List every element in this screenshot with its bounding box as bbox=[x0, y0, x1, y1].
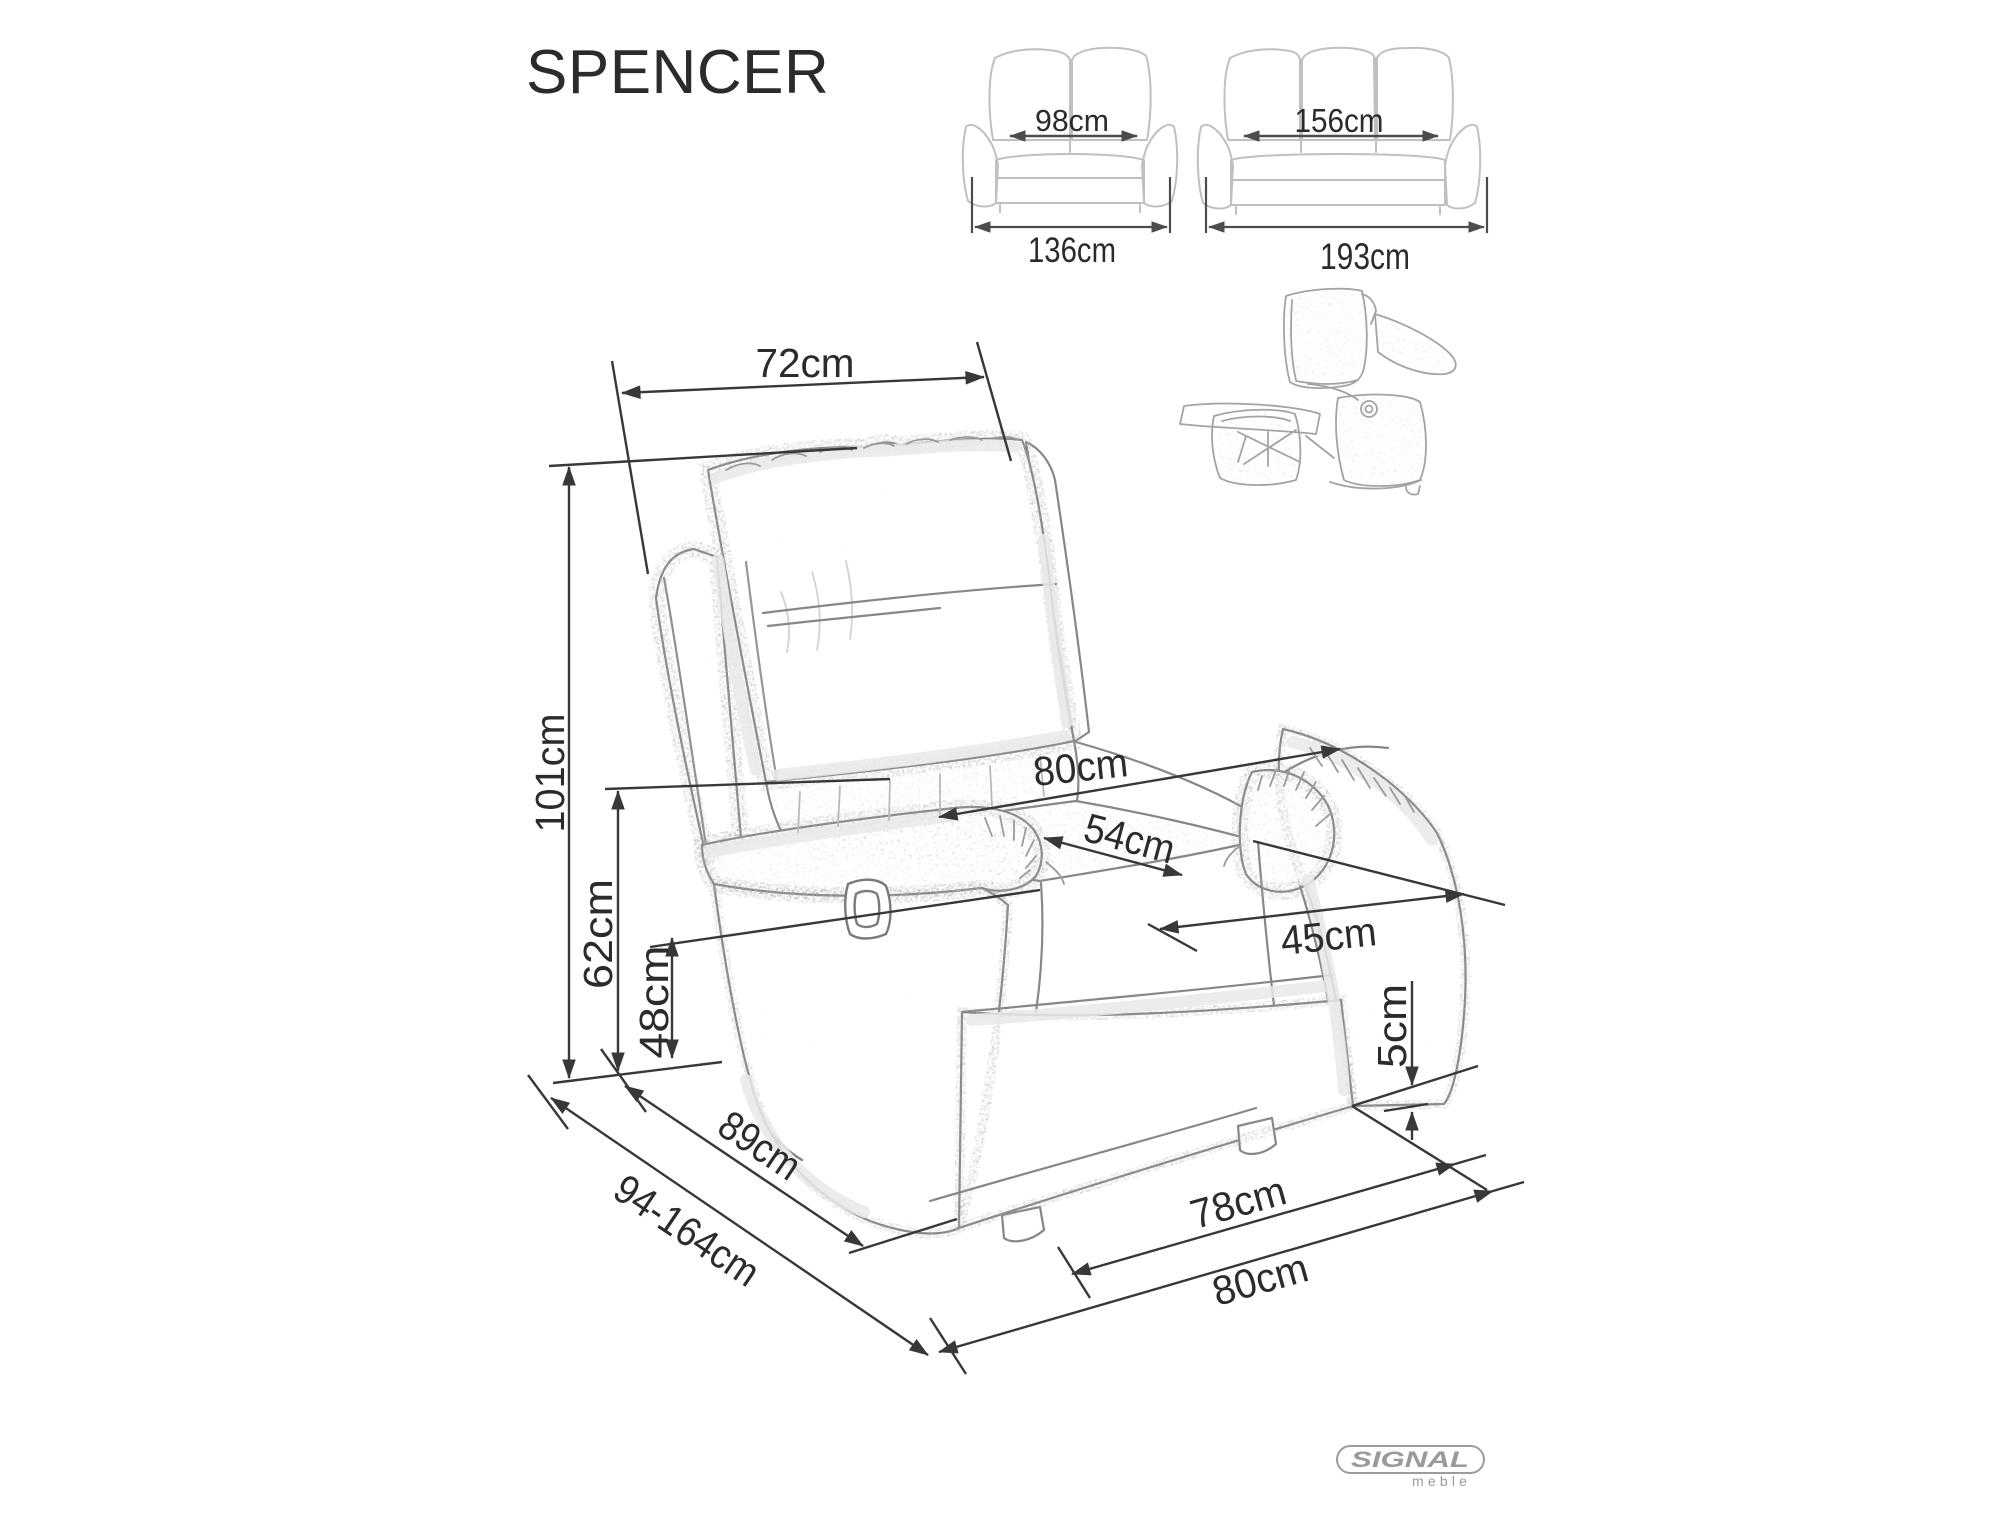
svg-text:62cm: 62cm bbox=[575, 879, 621, 989]
svg-text:5cm: 5cm bbox=[1369, 984, 1415, 1068]
svg-text:156cm: 156cm bbox=[1295, 102, 1384, 139]
svg-text:101cm: 101cm bbox=[527, 714, 573, 833]
svg-text:SPENCER: SPENCER bbox=[526, 38, 829, 107]
svg-text:193cm: 193cm bbox=[1320, 236, 1410, 277]
svg-text:48cm: 48cm bbox=[631, 946, 677, 1059]
svg-text:SIGNAL: SIGNAL bbox=[1351, 1447, 1469, 1472]
svg-text:136cm: 136cm bbox=[1028, 231, 1116, 270]
svg-text:98cm: 98cm bbox=[1035, 103, 1109, 138]
svg-text:72cm: 72cm bbox=[756, 340, 855, 386]
svg-text:meble: meble bbox=[1412, 1473, 1471, 1489]
